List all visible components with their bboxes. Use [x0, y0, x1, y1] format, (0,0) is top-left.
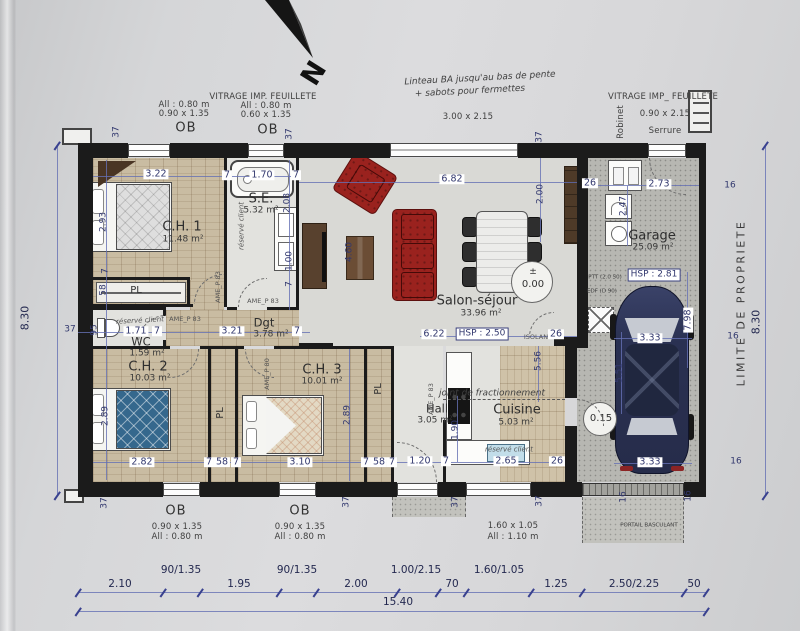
door-swing-arc [577, 399, 604, 426]
label: 2.50/2.25 [609, 579, 659, 590]
wall [316, 482, 397, 497]
floor-driveway [582, 497, 684, 543]
wall [299, 343, 333, 346]
label: 10.01 m² [301, 378, 342, 387]
label: Cuisine [493, 404, 541, 417]
label: OB [289, 505, 310, 518]
dimension-tick [703, 588, 710, 597]
label: 37 [101, 497, 110, 508]
label: 4.60 [346, 242, 355, 262]
label: 3.05 m² [417, 417, 452, 426]
label: 2.00 [537, 184, 546, 204]
wall [78, 482, 163, 497]
label: 7 [387, 457, 397, 467]
label: Robinet [617, 105, 626, 139]
window-ch3 [279, 483, 316, 496]
dimension-line [106, 160, 107, 480]
wall [438, 482, 466, 497]
wall [565, 426, 577, 482]
label: 7 [286, 281, 295, 287]
label: 2.82 [129, 457, 154, 467]
label: 3.33 [637, 333, 662, 343]
label: C.H. 2 [128, 361, 167, 374]
label: 1.59 m² [129, 350, 164, 359]
label: 16 [620, 491, 629, 502]
label: 37 [64, 326, 75, 335]
label: 16 [724, 182, 735, 191]
rear-window [625, 418, 679, 435]
label: AME_P 83 [247, 298, 279, 305]
car-roof [625, 344, 679, 416]
cushion [401, 272, 434, 298]
door-swing-arc-circle [170, 349, 199, 378]
label: 70 [445, 579, 458, 590]
label: 1.00/2.15 [391, 565, 441, 576]
quilt [116, 390, 169, 449]
label: 2.65 [493, 456, 518, 466]
label: 16 [730, 458, 741, 467]
label: 2.00 [344, 579, 367, 590]
tv [322, 232, 326, 282]
label: AME_P 80 [264, 358, 271, 390]
level-value: 0.00 [512, 280, 554, 293]
door-garage-top [648, 144, 686, 157]
label: 7 [222, 170, 232, 180]
joint-dash-line [443, 399, 565, 400]
wall [267, 307, 299, 310]
label: 90/1.35 [161, 565, 201, 576]
taillight [671, 466, 684, 471]
taillight [620, 466, 633, 471]
rung [693, 122, 709, 124]
label: 11.48 m² [162, 236, 203, 245]
label: 3.10 [287, 457, 312, 467]
label: 37 [452, 496, 461, 507]
wall [518, 143, 648, 158]
door-swing-arc [170, 349, 199, 378]
wall [284, 143, 390, 158]
label: PL [130, 286, 142, 296]
label: HSP : 2.50 [456, 328, 509, 341]
label: joint de fractionnement [439, 390, 545, 399]
label: 26 [549, 456, 565, 466]
label: Dgt [254, 317, 275, 329]
pillow [246, 428, 257, 449]
label: 0.90 x 1.35 [152, 523, 203, 532]
dimension-tick [703, 607, 710, 616]
label: 3.33 [637, 457, 662, 467]
label: OB [165, 505, 186, 518]
label: 5.56 [535, 351, 544, 371]
wall [200, 482, 279, 497]
bed-ch3 [242, 395, 324, 456]
wall [170, 143, 248, 158]
rung [693, 112, 709, 114]
label: 1.95 [227, 579, 250, 590]
window-se [248, 144, 284, 157]
label: 2.10 [108, 579, 131, 590]
label: 7 [292, 326, 302, 336]
sofa [392, 209, 437, 301]
label: 7 [291, 170, 301, 180]
wall [187, 280, 190, 307]
label: 2.89 [344, 405, 353, 425]
label: HSP : 2.81 [628, 269, 681, 282]
label: 50 [687, 579, 700, 590]
label: 0.90 x 1.35 [159, 110, 210, 119]
label: 95 [91, 324, 100, 335]
label: 3.78 m² [253, 331, 288, 340]
label: 2.89 [102, 406, 111, 426]
dimension-tick [54, 491, 61, 500]
label: 1.60/1.05 [474, 565, 524, 576]
label: 3.22 [143, 169, 168, 179]
label: 7.98 [683, 307, 693, 332]
label: PL [216, 407, 226, 419]
label: WC [131, 336, 150, 348]
label: 58 [371, 457, 387, 467]
label: 5.32 m² [243, 207, 278, 216]
label: 1.70 [249, 170, 274, 180]
label: 37 [343, 496, 352, 507]
door-swing-arc [649, 158, 686, 195]
label: 2.08 [284, 193, 293, 213]
label: 5.03 m² [498, 419, 533, 428]
label: Salon-séjour [437, 295, 518, 308]
label: 37 [536, 131, 545, 142]
label: 0.90 x 1.35 [275, 523, 326, 532]
pillow [246, 401, 257, 422]
label: 16 [685, 490, 694, 501]
label: 37 [536, 495, 545, 506]
label: 7 [204, 457, 214, 467]
label: 1.60 x 1.05 [488, 522, 539, 531]
cushion [401, 214, 434, 240]
label: 10.03 m² [129, 375, 170, 384]
label: AME_P 83 [169, 316, 201, 323]
label: 15.40 [383, 597, 413, 608]
wall [227, 307, 237, 310]
label: 33.96 m² [460, 310, 501, 319]
window-bay [390, 143, 518, 157]
garage-cabinet [608, 160, 642, 191]
label: PORTAIL BASCULANT [620, 523, 678, 529]
wall [93, 307, 166, 310]
label: Serrure [649, 127, 682, 136]
washer-drum [611, 226, 627, 242]
dimension-tick [762, 491, 769, 500]
label: Linteau BA jusqu'au bas de pente [404, 71, 556, 88]
washbasin [278, 213, 294, 237]
window-ch2 [163, 483, 200, 496]
label: VITRAGE IMP_ FEUILLETE [608, 93, 718, 102]
level-sign: ± [512, 268, 554, 279]
label: C.H. 3 [302, 364, 341, 377]
seat [346, 164, 386, 204]
label: 0.60 x 1.35 [241, 111, 292, 120]
label: 1.90 [452, 420, 461, 440]
label: + sabots pour fermettes [415, 85, 526, 100]
label: All : 0.80 m [274, 533, 325, 542]
wall [78, 143, 93, 497]
label: 8.30 [751, 310, 762, 335]
dimension-line [78, 592, 706, 593]
label: 0.90 x 2.15 [640, 110, 691, 119]
label: 7 [102, 268, 111, 274]
label: 5.51 [616, 363, 625, 383]
label: 7 [231, 457, 241, 467]
label: 7 [361, 457, 371, 467]
label: 6.82 [439, 174, 464, 184]
label: réservé client [239, 202, 246, 250]
rung [693, 102, 709, 104]
wall [224, 158, 227, 307]
label: 26 [548, 329, 564, 339]
pillow [92, 189, 104, 214]
label: All : 1.10 m [487, 533, 538, 542]
label: S.E. [249, 193, 274, 206]
label: OB [175, 122, 196, 135]
door-swing-arc-circle [649, 158, 686, 195]
label: All : 0.80 m [151, 533, 202, 542]
label: 25.09 m² [632, 244, 673, 253]
dimension-line [57, 145, 58, 495]
label: AME_P 83 [215, 271, 222, 303]
dimension-line [289, 160, 290, 310]
dimension-line [299, 182, 577, 183]
dimension-line [78, 611, 706, 612]
label: PL [374, 383, 384, 395]
dimension-line [588, 185, 699, 186]
cushion [401, 243, 434, 269]
label: 3.00 x 2.15 [443, 113, 494, 122]
wall [699, 143, 706, 497]
kitchen-tall-units [564, 166, 578, 244]
label: 90/1.35 [277, 565, 317, 576]
label: 1.20 [407, 456, 432, 466]
label: LIMITE DE PROPRIETE [736, 220, 747, 387]
label: 1.25 [544, 579, 567, 590]
label: 2.47 [620, 196, 629, 216]
label: OB [257, 124, 278, 137]
label: réservé client [485, 447, 533, 454]
portail-basculant [582, 483, 684, 496]
label: 3.21 [219, 326, 244, 336]
label: 58 [214, 457, 230, 467]
label: 7 [152, 326, 162, 336]
floor-plan: N ±0.000.15VITRAGE IMP. FEUILLETEAll : 0… [0, 0, 800, 631]
wall [443, 420, 446, 482]
label: PTT (2.0 50) [588, 275, 621, 281]
dimension-line [765, 145, 766, 495]
label: 58 [100, 284, 109, 295]
door-swing-arc-circle [577, 399, 604, 426]
label: 37 [113, 126, 122, 137]
label: 37 [286, 128, 295, 139]
door-entry [397, 483, 438, 496]
label: EDF (D 90) [587, 289, 617, 295]
wall [296, 158, 299, 310]
wall [565, 345, 577, 398]
label: 1.00 [286, 251, 295, 271]
label: 8.30 [20, 306, 31, 331]
label: 2.93 [100, 212, 109, 232]
window-ch1 [128, 144, 170, 157]
shelf [613, 167, 624, 185]
label: 6.22 [421, 329, 446, 339]
label: 2.73 [646, 179, 671, 189]
wall [274, 346, 394, 349]
label: C.H. 1 [162, 221, 201, 234]
label: 1.71 [123, 326, 148, 336]
chair [526, 242, 542, 262]
window-cuisine [466, 483, 531, 496]
tv-unit [302, 223, 327, 289]
label: 26 [582, 178, 598, 188]
wall [93, 277, 190, 280]
shelf [628, 167, 639, 185]
floor-plan-photo: N ±0.000.15VITRAGE IMP. FEUILLETEAll : 0… [0, 0, 800, 631]
label: AME_P 83 [428, 383, 435, 415]
label: 7 [441, 456, 451, 466]
label: Garage [628, 230, 676, 243]
label: ISOLAN [524, 334, 548, 341]
